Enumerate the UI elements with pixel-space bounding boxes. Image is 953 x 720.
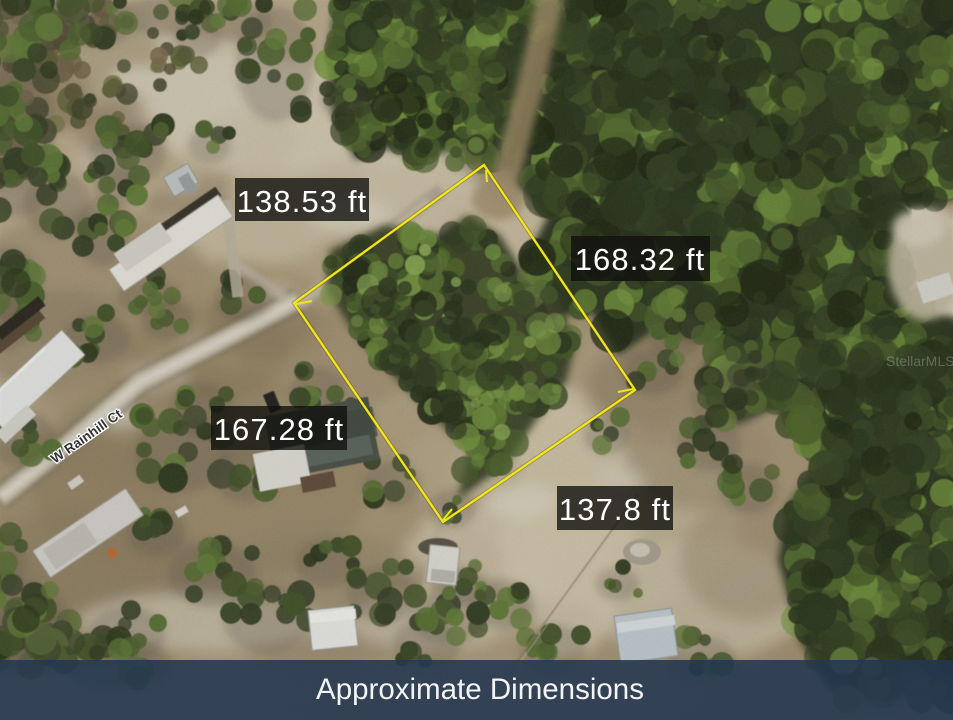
svg-text:168.32 ft: 168.32 ft — [575, 242, 706, 277]
svg-text:Approximate Dimensions: Approximate Dimensions — [316, 673, 644, 706]
svg-text:StellarMLS: StellarMLS — [886, 353, 953, 369]
svg-text:137.8 ft: 137.8 ft — [559, 492, 671, 527]
svg-text:138.53 ft: 138.53 ft — [237, 184, 368, 219]
svg-text:167.28 ft: 167.28 ft — [214, 412, 345, 447]
